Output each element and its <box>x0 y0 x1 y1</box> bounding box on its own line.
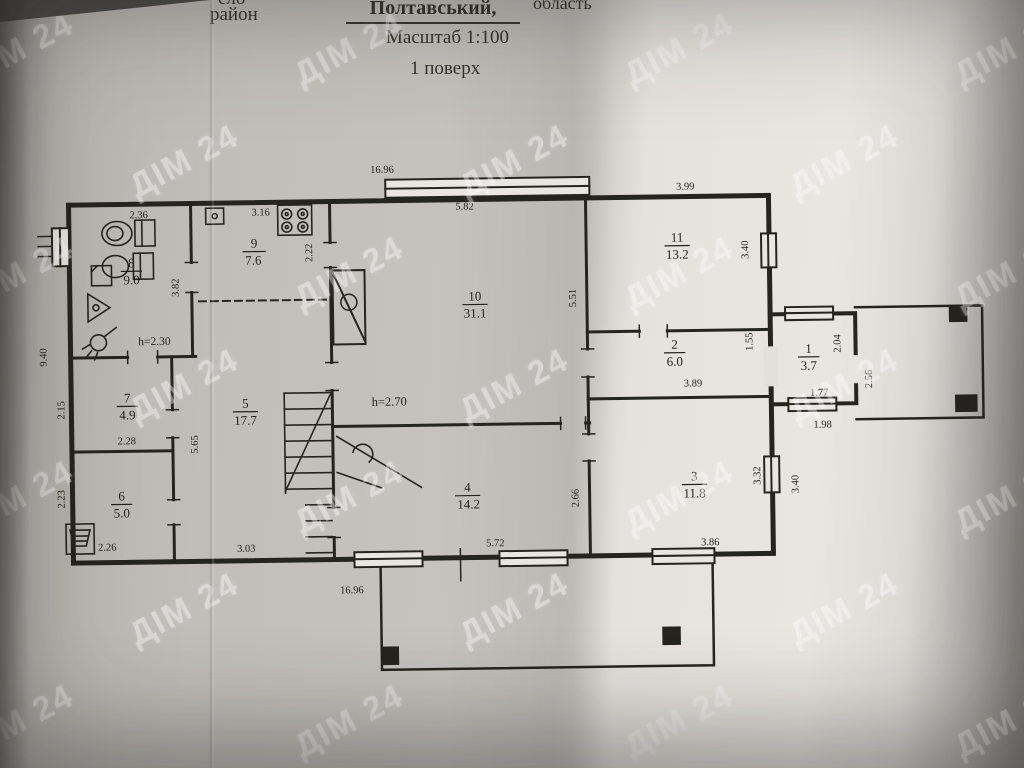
scale-label: Масштаб 1:100 <box>386 27 509 49</box>
dim-room4-bottom: 5.72 <box>486 538 505 549</box>
porch-pillar <box>956 396 976 411</box>
room11-area: 13.2 <box>666 247 689 262</box>
room8-area: 9.0 <box>123 272 139 287</box>
photographed-floor-plan-document: 1 3.7 2 6.0 3 11.8 4 14.2 5 17.7 6 5.0 7… <box>0 0 1024 768</box>
stove-icon <box>278 205 312 235</box>
room8-number: 8 <box>128 255 135 270</box>
room6-number: 6 <box>118 488 125 503</box>
dim-room1-side: 2.04 <box>832 333 843 352</box>
corner-basin-icon <box>88 294 110 322</box>
cellar-stairs <box>337 435 422 488</box>
height-room10: h=2.70 <box>372 394 407 408</box>
room4-number: 4 <box>464 480 471 495</box>
dim-room9-top: 3.16 <box>251 207 270 218</box>
dim-room3-right: 3.32 <box>752 466 763 485</box>
bottom-porch <box>381 557 714 670</box>
district-label: район <box>210 4 258 26</box>
room6-area: 5.0 <box>114 505 130 520</box>
dim-room9-right: 2.22 <box>304 244 315 263</box>
room9-number: 9 <box>251 236 258 251</box>
fraction-lines <box>108 244 820 505</box>
room9-area: 7.6 <box>245 252 262 267</box>
dim-room6-left: 2.23 <box>56 490 67 509</box>
dim-room11-right: 3.40 <box>740 240 751 259</box>
shower-icon <box>82 328 116 360</box>
dim-room6-bottom: 2.26 <box>98 543 117 554</box>
dim-bottom: 16.96 <box>340 585 364 596</box>
dim-room4-right: 2.66 <box>571 489 582 508</box>
dim-room1-outer-bottom: 1.98 <box>813 420 832 431</box>
washer-icon <box>66 524 94 554</box>
dim-room1-bottom: 1.77 <box>810 388 829 399</box>
dim-room7-bottom: 2.28 <box>118 436 137 447</box>
region-label: область <box>533 0 592 14</box>
height-room8: h=2.30 <box>138 336 171 348</box>
staircase <box>284 393 332 554</box>
dim-room5-left: 5.65 <box>190 435 201 454</box>
paper-crease <box>209 0 215 768</box>
floor-label: 1 поверх <box>410 58 480 80</box>
dim-room8-right: 3.82 <box>171 278 182 297</box>
dim-room10-right: 5.51 <box>568 289 579 308</box>
doorway-room1-to-porch <box>849 355 863 383</box>
dim-left: 9.40 <box>39 348 50 367</box>
dim-room8-top: 2.36 <box>129 210 148 221</box>
dim-room2-bottom: 3.89 <box>684 378 703 389</box>
dimension-labels: 16.96 5.82 2.36 3.16 3.99 9.40 3.82 2.22… <box>36 158 878 601</box>
room1-number: 1 <box>805 341 812 356</box>
room3-number: 3 <box>691 468 698 483</box>
dim-room3-bottom: 3.86 <box>701 537 720 548</box>
dim-room3-outer-right: 3.40 <box>790 475 801 494</box>
dashed-partition <box>199 300 329 302</box>
porch-pillar <box>384 648 398 664</box>
room10-number: 10 <box>468 288 481 303</box>
radiator-marks <box>38 236 52 256</box>
toilet-icon <box>102 220 155 247</box>
furnace <box>332 270 365 344</box>
porch-pillar <box>950 308 966 321</box>
room2-number: 2 <box>671 337 678 352</box>
dim-room11-top: 3.99 <box>676 181 695 192</box>
right-porch <box>855 305 984 419</box>
doorway-room2-to-room1 <box>764 346 779 386</box>
room11-number: 11 <box>671 230 684 245</box>
room5-number: 5 <box>242 396 249 411</box>
windows <box>37 173 838 572</box>
room7-number: 7 <box>124 390 131 405</box>
dim-room7-left: 2.15 <box>56 401 67 420</box>
dim-room10-top: 5.82 <box>455 202 474 213</box>
dim-top: 16.96 <box>370 165 394 176</box>
room1-area: 3.7 <box>801 358 818 373</box>
porch-pillar <box>663 628 679 644</box>
room10-area: 31.1 <box>464 305 487 320</box>
photo-shadow-left <box>0 0 30 768</box>
dim-porch-right: 2.56 <box>864 370 875 389</box>
room3-area: 11.8 <box>683 485 705 500</box>
room7-area: 4.9 <box>119 407 135 422</box>
district-name: Полтавський, <box>346 0 520 24</box>
dim-room5-bottom: 3.03 <box>237 544 256 555</box>
plan-labels: 1 3.7 2 6.0 3 11.8 4 14.2 5 17.7 6 5.0 7… <box>110 228 820 521</box>
dim-room2-right: 1.55 <box>744 332 755 351</box>
room4-area: 14.2 <box>457 496 480 511</box>
room2-area: 6.0 <box>667 354 683 369</box>
room5-area: 17.7 <box>234 413 257 428</box>
floor-plan-drawing: 1 3.7 2 6.0 3 11.8 4 14.2 5 17.7 6 5.0 7… <box>0 0 1024 768</box>
